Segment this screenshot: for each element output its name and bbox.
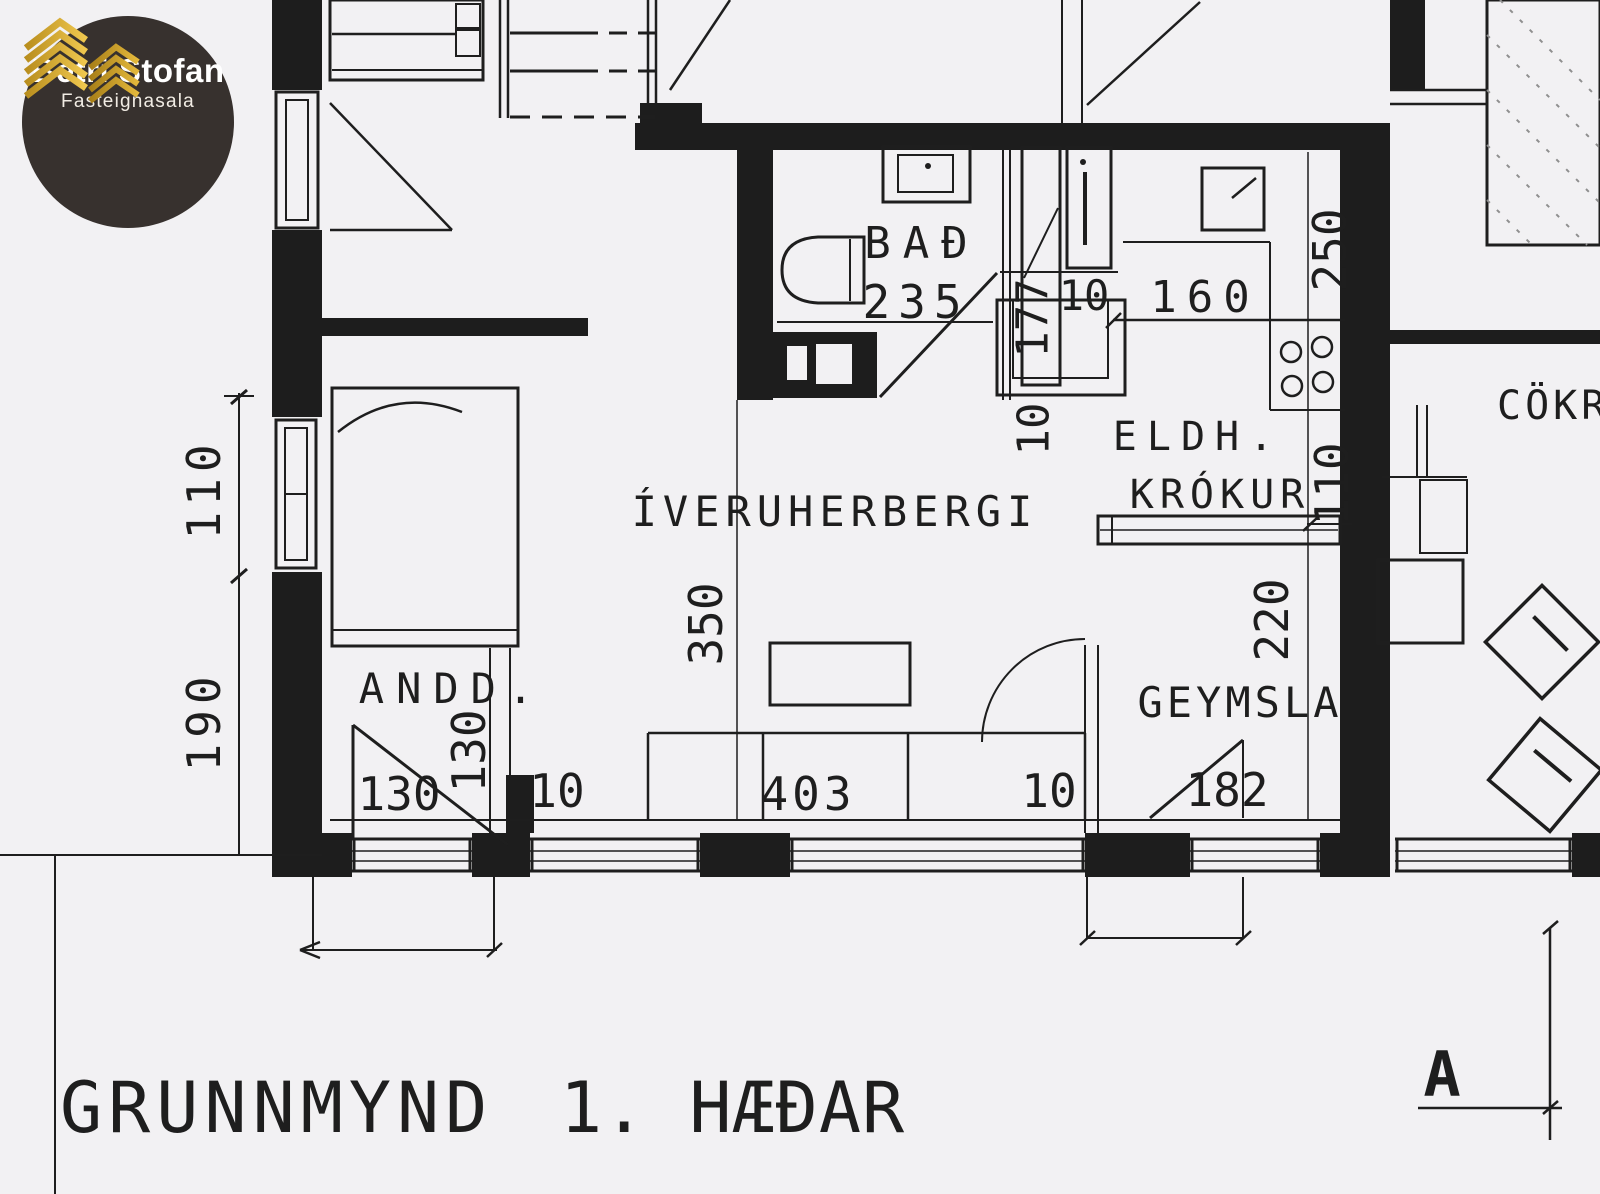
dim-living-height: 350	[679, 582, 733, 665]
door-swing	[670, 0, 730, 90]
window-strip	[1395, 839, 1572, 871]
floor-plan-scan: A BAÐ 235 ÍVERUHERBERGI ELDH. KRÓKUR GEY…	[0, 0, 1600, 1194]
bed	[332, 388, 518, 646]
stove-burners-icon	[1281, 337, 1333, 396]
door-arc	[982, 639, 1085, 742]
dim-left-upper: 110	[177, 438, 231, 539]
dim-bathroom: 235	[862, 275, 969, 329]
pillow	[456, 30, 480, 56]
dim-closet-gap-top: 10	[1059, 271, 1110, 320]
fixture	[1382, 405, 1467, 553]
table	[1378, 560, 1463, 643]
room-label-entry: ANDD.	[359, 664, 545, 713]
kitchen-sink-icon	[1202, 168, 1264, 230]
chair	[1489, 719, 1600, 832]
window-strip	[352, 839, 472, 871]
dim-sofa-width: 403	[760, 767, 855, 821]
toilet-icon	[782, 237, 864, 303]
caption-main: GRUNNMYND	[60, 1067, 493, 1149]
upper-room-door	[1062, 0, 1200, 123]
room-label-kitchen-1: ELDH.	[1113, 414, 1283, 460]
entry-dim-bracket	[300, 877, 502, 958]
caption: GRUNNMYND 1. HÆÐAR	[60, 1067, 905, 1149]
dim-closet-gap-bottom: 10	[1008, 403, 1059, 456]
agency-logo: Betri Stofan Fasteignasala	[22, 16, 234, 228]
dim-entry-depth: 130	[442, 709, 496, 792]
staircase	[500, 0, 656, 118]
window-strip	[530, 839, 700, 871]
sofa	[648, 733, 1085, 820]
dim-kitchen-right-bottom: 220	[1245, 578, 1299, 661]
sink-icon	[883, 147, 970, 202]
section-marker-label: A	[1423, 1038, 1460, 1111]
dim-entry-width: 130	[357, 767, 440, 821]
pillow	[456, 4, 480, 28]
storage-dim-bracket	[1080, 877, 1251, 945]
bathroom	[771, 147, 997, 398]
room-labels: BAÐ 235 ÍVERUHERBERGI ELDH. KRÓKUR GEYMS…	[359, 218, 1600, 727]
section-marker: A	[1418, 921, 1562, 1140]
dim-kitchen-width: 160	[1150, 272, 1259, 323]
room-label-storage: GEYMSLA	[1137, 678, 1342, 727]
dim-living-gap: 10	[1021, 764, 1076, 818]
table	[770, 643, 910, 705]
door-swing	[330, 103, 452, 230]
washing-machine-icon	[771, 332, 877, 398]
floor-plan-drawing: A BAÐ 235 ÍVERUHERBERGI ELDH. KRÓKUR GEY…	[0, 0, 1600, 1194]
room-label-right-partial: CÖKR	[1497, 381, 1600, 429]
window-strip	[1190, 839, 1320, 871]
dim-kitchen-right-top: 250	[1303, 208, 1357, 291]
dim-storage-width: 182	[1185, 763, 1268, 817]
dim-kitchen-right-mid: 110	[1305, 442, 1359, 525]
dim-entry-gap: 10	[529, 764, 584, 818]
caption-floor: 1. HÆÐAR	[560, 1067, 905, 1149]
room-label-living: ÍVERUHERBERGI	[632, 486, 1039, 536]
window-strip	[790, 839, 1085, 871]
room-label-kitchen-2: KRÓKUR	[1130, 470, 1311, 518]
hatched-area	[1487, 0, 1600, 245]
chair	[1485, 585, 1598, 698]
logo-houses-icon	[22, 16, 150, 112]
bar-counter	[1098, 516, 1340, 544]
dim-closet-depth: 177	[1007, 278, 1058, 357]
dim-left-lower: 190	[177, 670, 231, 771]
room-label-bathroom: BAÐ	[864, 218, 979, 269]
